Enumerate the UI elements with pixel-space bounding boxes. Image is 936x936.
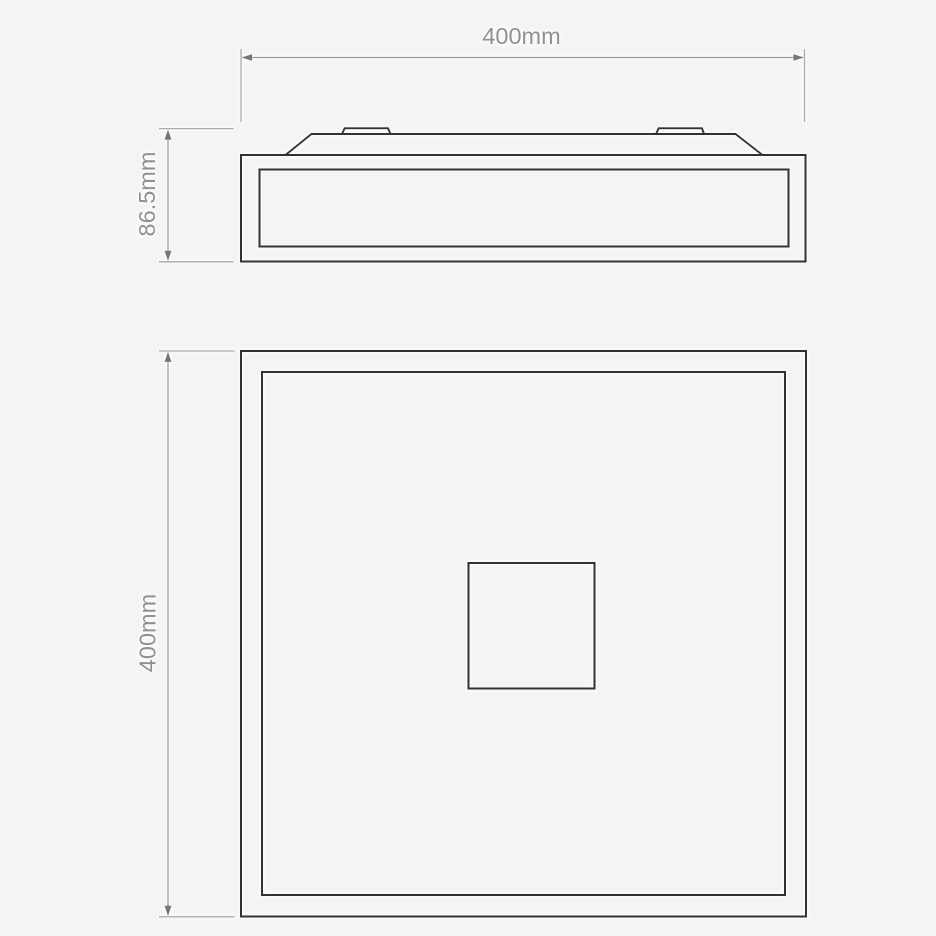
svg-text:400mm: 400mm — [482, 23, 560, 49]
svg-text:86.5mm: 86.5mm — [134, 152, 160, 237]
svg-text:400mm: 400mm — [134, 594, 160, 672]
